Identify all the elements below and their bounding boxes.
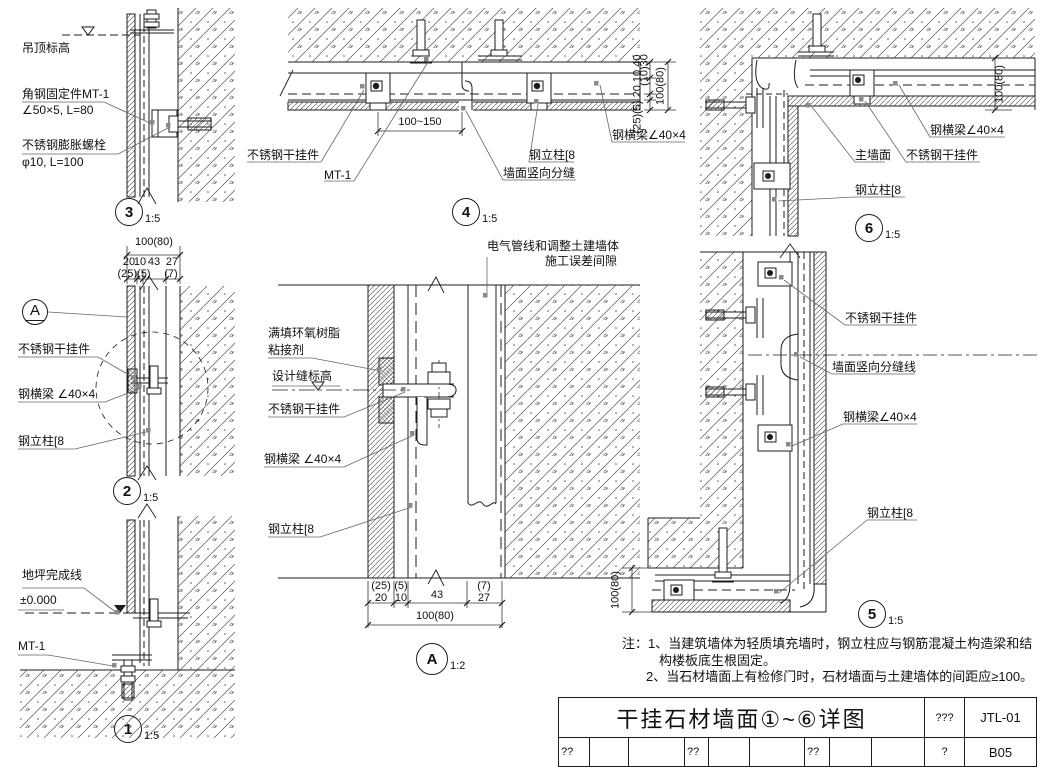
titleblock-cell-8 — [829, 738, 871, 766]
detail-4-bubble: 4 — [452, 198, 480, 226]
da-column: 钢立柱[8 — [268, 523, 314, 537]
detail-5-linework — [648, 244, 1038, 612]
d2-dim-43: 43 — [146, 256, 162, 269]
detail-5-bubble-number: 5 — [868, 607, 876, 622]
detail-6-bubble-number: 6 — [865, 221, 873, 236]
d2-dim-7: (7) — [162, 268, 180, 281]
sheet-number: B05 — [964, 738, 1036, 766]
d3-expansion-bolt-2: φ10, L=100 — [22, 156, 84, 170]
detail-6-bubble: 6 — [855, 214, 883, 242]
d6-beam: 钢横梁∠40×4 — [930, 124, 1004, 138]
detail-2-linework — [96, 276, 235, 480]
titleblock-cell-6 — [749, 738, 804, 766]
detail-3-bubble-number: 3 — [125, 205, 133, 220]
detail-2-bubble-number: 2 — [123, 484, 131, 499]
d2-dim-10: 10 — [133, 256, 147, 269]
d1-level: ±0.000 — [20, 594, 57, 608]
da-dim-10: 10 — [391, 592, 411, 605]
da-dim-43: 43 — [424, 589, 450, 602]
d3-angle-bracket-1: 角钢固定件MT-1 — [22, 88, 109, 102]
titleblock-cell-5 — [708, 738, 749, 766]
titleblock-cell-2 — [589, 738, 628, 766]
da-epoxy-1: 满填环氧树脂 — [268, 327, 340, 341]
detail-5-bubble: 5 — [858, 600, 886, 628]
d6-column: 钢立柱[8 — [855, 184, 901, 198]
d5-beam: 钢横梁∠40×4 — [843, 411, 917, 425]
detail-6-linework — [700, 8, 1035, 236]
d2-dim-total: 100(80) — [128, 236, 180, 249]
detail-1-bubble-number: 1 — [124, 722, 132, 737]
d2-dim-27: 27 — [164, 256, 180, 269]
d3-ceiling-level: 吊顶标高 — [22, 42, 70, 56]
da-beam: 钢横梁 ∠40×4 — [264, 453, 341, 467]
detail-4-bubble-scale: 1:5 — [482, 213, 497, 226]
drawing-sheet: 吊顶标高角钢固定件MT-1∠50×5, L=80不锈钢膨胀螺栓φ10, L=10… — [0, 0, 1041, 767]
titleblock-field-1: ??? — [924, 698, 964, 737]
da-epoxy-2: 粘接剂 — [268, 344, 304, 358]
detail-1-bubble: 1 — [114, 715, 142, 743]
d4-dim-v2: (25)(5) 20 10 40 — [632, 55, 645, 134]
da-joint-level: 设计缝标高 — [272, 370, 332, 384]
titleblock-cell-1: ?? — [559, 738, 589, 766]
detail-a-bubble-scale: 1:2 — [450, 660, 465, 673]
note-line-3: 2、当石材墙面上有检修门时，石材墙面与土建墙体的间距应≥100。 — [646, 670, 1033, 685]
titleblock-cell-4: ?? — [684, 738, 708, 766]
d4-beam: 钢横梁∠40×4 — [612, 129, 686, 143]
d6-hanger: 不锈钢干挂件 — [906, 149, 978, 163]
d5-joint-line: 墙面竖向分缝线 — [832, 361, 916, 375]
d2-column: 钢立柱[8 — [18, 435, 64, 449]
titleblock-cell-7: ?? — [804, 738, 829, 766]
d4-hanger: 不锈钢干挂件 — [247, 149, 319, 163]
d4-column: 钢立柱[8 — [529, 149, 575, 163]
da-dim-27: 27 — [472, 592, 496, 605]
d4-mt1: MT-1 — [324, 169, 351, 183]
note-line-1: 注：1、当建筑墙体为轻质填充墙时，钢立柱应与钢筋混凝土构造梁和结 — [622, 637, 1032, 652]
d3-expansion-bolt-1: 不锈钢膨胀螺栓 — [22, 139, 106, 153]
detail-1-bubble-scale: 1:5 — [144, 730, 159, 743]
d5-column: 钢立柱[8 — [867, 507, 913, 521]
da-hanger: 不锈钢干挂件 — [268, 403, 340, 417]
titleblock-cell-3 — [628, 738, 684, 766]
da-dim-total: 100(80) — [409, 610, 461, 623]
d4-joint: 墙面竖向分缝 — [503, 167, 575, 181]
linework-svg — [0, 0, 1041, 767]
d4-dim-100-150: 100~150 — [396, 116, 444, 129]
detail-a-bubble-number: A — [427, 652, 438, 667]
title-block: 干挂石材墙面①~⑥详图 ??? JTL-01 ?? ?? ?? ? B05 — [558, 697, 1037, 767]
da-elec-1: 电气管线和调整土建墙体 — [487, 240, 619, 254]
detail-a-linework — [272, 277, 640, 586]
detail-2-bubble: 2 — [113, 477, 141, 505]
detail-a-bubble: A — [416, 643, 448, 675]
d2-beam: 钢横梁 ∠40×4 — [18, 388, 95, 402]
note-line-2: 构楼板底生根固定。 — [659, 654, 776, 669]
d6-dim-100-80: 100(80) — [994, 65, 1007, 103]
drawing-title: 干挂石材墙面①~⑥详图 — [559, 698, 924, 737]
d2-dim-25-5: (25)(5) — [116, 268, 152, 281]
detail-5-bubble-scale: 1:5 — [888, 615, 903, 628]
titleblock-cell-10: ? — [924, 738, 964, 766]
d5-hanger: 不锈钢干挂件 — [845, 312, 917, 326]
section-a-marker: A — [22, 299, 48, 325]
d3-angle-bracket-2: ∠50×5, L=80 — [22, 104, 93, 118]
detail-4-linework — [280, 8, 640, 111]
section-a-marker-number: A — [25, 303, 45, 321]
detail-6-bubble-scale: 1:5 — [885, 229, 900, 242]
detail-3-bubble: 3 — [115, 198, 143, 226]
drawing-number: JTL-01 — [964, 698, 1036, 737]
d1-mt1: MT-1 — [18, 640, 45, 654]
detail-2-bubble-scale: 1:5 — [143, 492, 158, 505]
da-dim-7: (7) — [472, 580, 496, 593]
da-elec-2: 施工误差间隙 — [545, 255, 617, 269]
d4-dim-v3: 100(80) — [655, 67, 668, 105]
d6-main-wall: 主墙面 — [855, 149, 891, 163]
titleblock-cell-9 — [871, 738, 924, 766]
da-dim-5: (5) — [391, 580, 411, 593]
d1-floor-line: 地坪完成线 — [22, 569, 82, 583]
detail-3-bubble-scale: 1:5 — [145, 213, 160, 226]
detail-4-bubble-number: 4 — [462, 205, 470, 220]
d5-dim-100-80: 100(80) — [610, 571, 623, 609]
detail-1-linework — [20, 504, 235, 738]
d2-hanger: 不锈钢干挂件 — [18, 343, 90, 357]
